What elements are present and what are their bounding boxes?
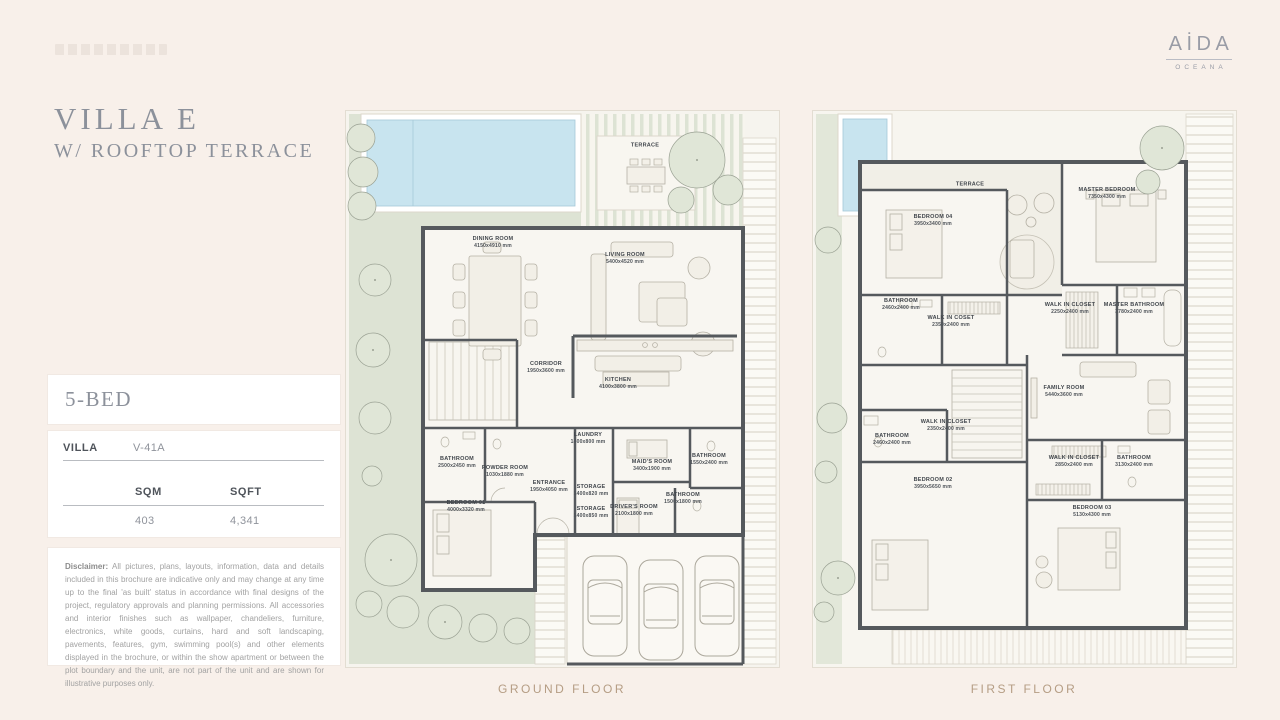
sqft-header: SQFT [230,486,262,498]
room-label: BATHROOM2460x2400 mm [873,433,911,447]
room-label: CORRIDOR1950x3600 mm [527,361,565,375]
entry-walkway [535,537,565,664]
brand-divider [1166,59,1232,60]
faint-watermark [55,44,167,55]
room-label: TERRACE [631,142,659,149]
swimming-pool [361,114,581,212]
spec-divider-1 [63,460,324,461]
first-floor-caption: FIRST FLOOR [971,682,1078,696]
room-label: DRIVER'S ROOM2100x1800 mm [610,504,658,518]
room-label: STORAGE1400x820 mm [574,484,609,498]
first-floor-plan: TERRACE BEDROOM 043950x3400 mm MASTER BE… [812,110,1237,668]
room-label: FAMILY ROOM5440x3600 mm [1044,385,1085,399]
brand-logo: AİDA OCEANA [1160,33,1238,71]
disclaimer-text: Disclaimer: All pictures, plans, layouts… [65,561,324,691]
brand-subtitle: OCEANA [1160,64,1238,71]
room-label: LIVING ROOM5400x4520 mm [605,252,645,266]
room-label: BATHROOM3130x2400 mm [1115,455,1153,469]
room-label: WALK IN CLOSET2350x2400 mm [921,419,972,433]
sqft-value: 4,341 [230,515,260,527]
ground-floor-drawing [345,110,780,668]
room-label: BEDROOM 035130x4300 mm [1073,505,1112,519]
ground-floor-caption: GROUND FLOOR [498,682,626,696]
room-label: MASTER BEDROOM7350x4300 mm [1079,187,1136,201]
villa-spec-panel: VILLA V-41A SQM SQFT 403 4,341 [48,431,340,537]
villa-label: VILLA [63,442,98,454]
villa-number: V-41A [133,442,165,454]
staircase [952,370,1022,458]
room-label: WALK IN CLOSET2850x2400 mm [1049,455,1100,469]
room-label: LAUNDRY1400x800 mm [571,432,606,446]
room-label: KITCHEN4100x3800 mm [599,377,637,391]
room-label: TERRACE [956,181,984,188]
ground-floor-plan: TERRACE DINING ROOM4150x4910 mm LIVING R… [345,110,780,668]
sqm-header: SQM [135,486,162,498]
room-label: BATHROOM1500x1800 mm [664,492,702,506]
room-label: BATHROOM1550x2400 mm [690,453,728,467]
room-label: BEDROOM 023950x5650 mm [914,477,953,491]
room-label: BATHROOM2500x2450 mm [438,456,476,470]
room-label: BATHROOM2460x2400 mm [882,298,920,312]
spec-divider-2 [63,505,324,506]
page-title: VILLA E [54,101,200,137]
room-label: STORAGE1400x850 mm [574,506,609,520]
disclaimer-panel: Disclaimer: All pictures, plans, layouts… [48,548,340,665]
staircase [429,342,517,420]
room-label: WALK IN CLOSET2250x2400 mm [1045,302,1096,316]
garage-floor [567,535,743,664]
room-label: MASTER BATHROOM3780x2400 mm [1104,302,1164,316]
sqm-value: 403 [135,515,155,527]
page-subtitle: W/ ROOFTOP TERRACE [54,140,314,163]
roof-deck-right [1186,114,1233,664]
walkway-right [743,138,776,664]
room-label: BEDROOM 043950x3400 mm [914,214,953,228]
brochure-page: { "brand": { "name": "AİDA", "subtitle":… [0,0,1280,720]
room-label: ENTRANCE1950x4050 mm [530,480,568,494]
bedrooms-label: 5-BED [48,375,340,424]
room-label: POWDER ROOM1030x1880 mm [482,465,528,479]
room-label: MAID'S ROOM3400x1900 mm [632,459,672,473]
room-label: DINING ROOM4150x4910 mm [473,236,514,250]
roof-deck-bottom [892,630,1186,664]
room-label: WALK IN COSET2350x2400 mm [928,315,975,329]
first-floor-drawing [812,110,1237,668]
brand-name: AİDA [1160,33,1238,56]
room-label: BEDROOM 014000x3320 mm [447,500,486,514]
bedrooms-panel: 5-BED [48,375,340,424]
